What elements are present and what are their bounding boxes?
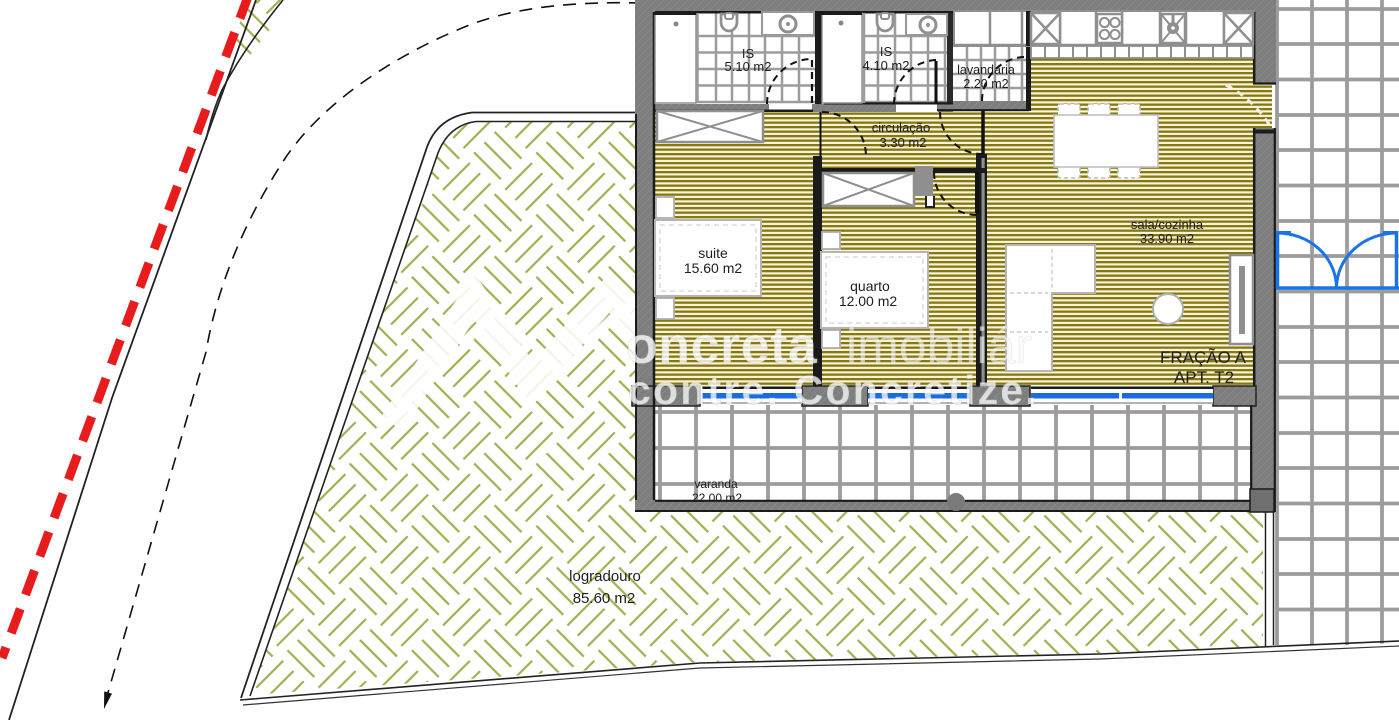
svg-text:circulação: circulação (872, 120, 931, 135)
svg-text:IS: IS (880, 44, 893, 59)
svg-text:suite: suite (698, 245, 728, 261)
svg-text:4.10 m2: 4.10 m2 (863, 58, 910, 73)
svg-text:contre. Concretize.: contre. Concretize. (628, 367, 1039, 413)
svg-text:imobiliár: imobiliár (846, 318, 1032, 374)
svg-text:lavandaria: lavandaria (957, 63, 1015, 77)
svg-text:85.60 m2: 85.60 m2 (573, 590, 636, 607)
svg-text:3.30 m2: 3.30 m2 (880, 135, 927, 150)
svg-text:5.10 m2: 5.10 m2 (725, 59, 772, 74)
svg-text:APT. T2: APT. T2 (1174, 368, 1234, 387)
svg-text:12.00 m2: 12.00 m2 (839, 293, 898, 309)
svg-text:varanda: varanda (694, 477, 738, 491)
svg-text:logradouro: logradouro (569, 568, 641, 585)
svg-text:15.60 m2: 15.60 m2 (684, 260, 743, 276)
svg-text:22.00 m2: 22.00 m2 (692, 491, 742, 505)
svg-text:33.90 m2: 33.90 m2 (1140, 231, 1194, 246)
svg-text:FRAÇÃO A: FRAÇÃO A (1160, 348, 1247, 367)
svg-text:quarto: quarto (850, 278, 890, 294)
svg-text:sala/cozinha: sala/cozinha (1131, 217, 1204, 232)
svg-text:2.20 m2: 2.20 m2 (963, 77, 1008, 91)
